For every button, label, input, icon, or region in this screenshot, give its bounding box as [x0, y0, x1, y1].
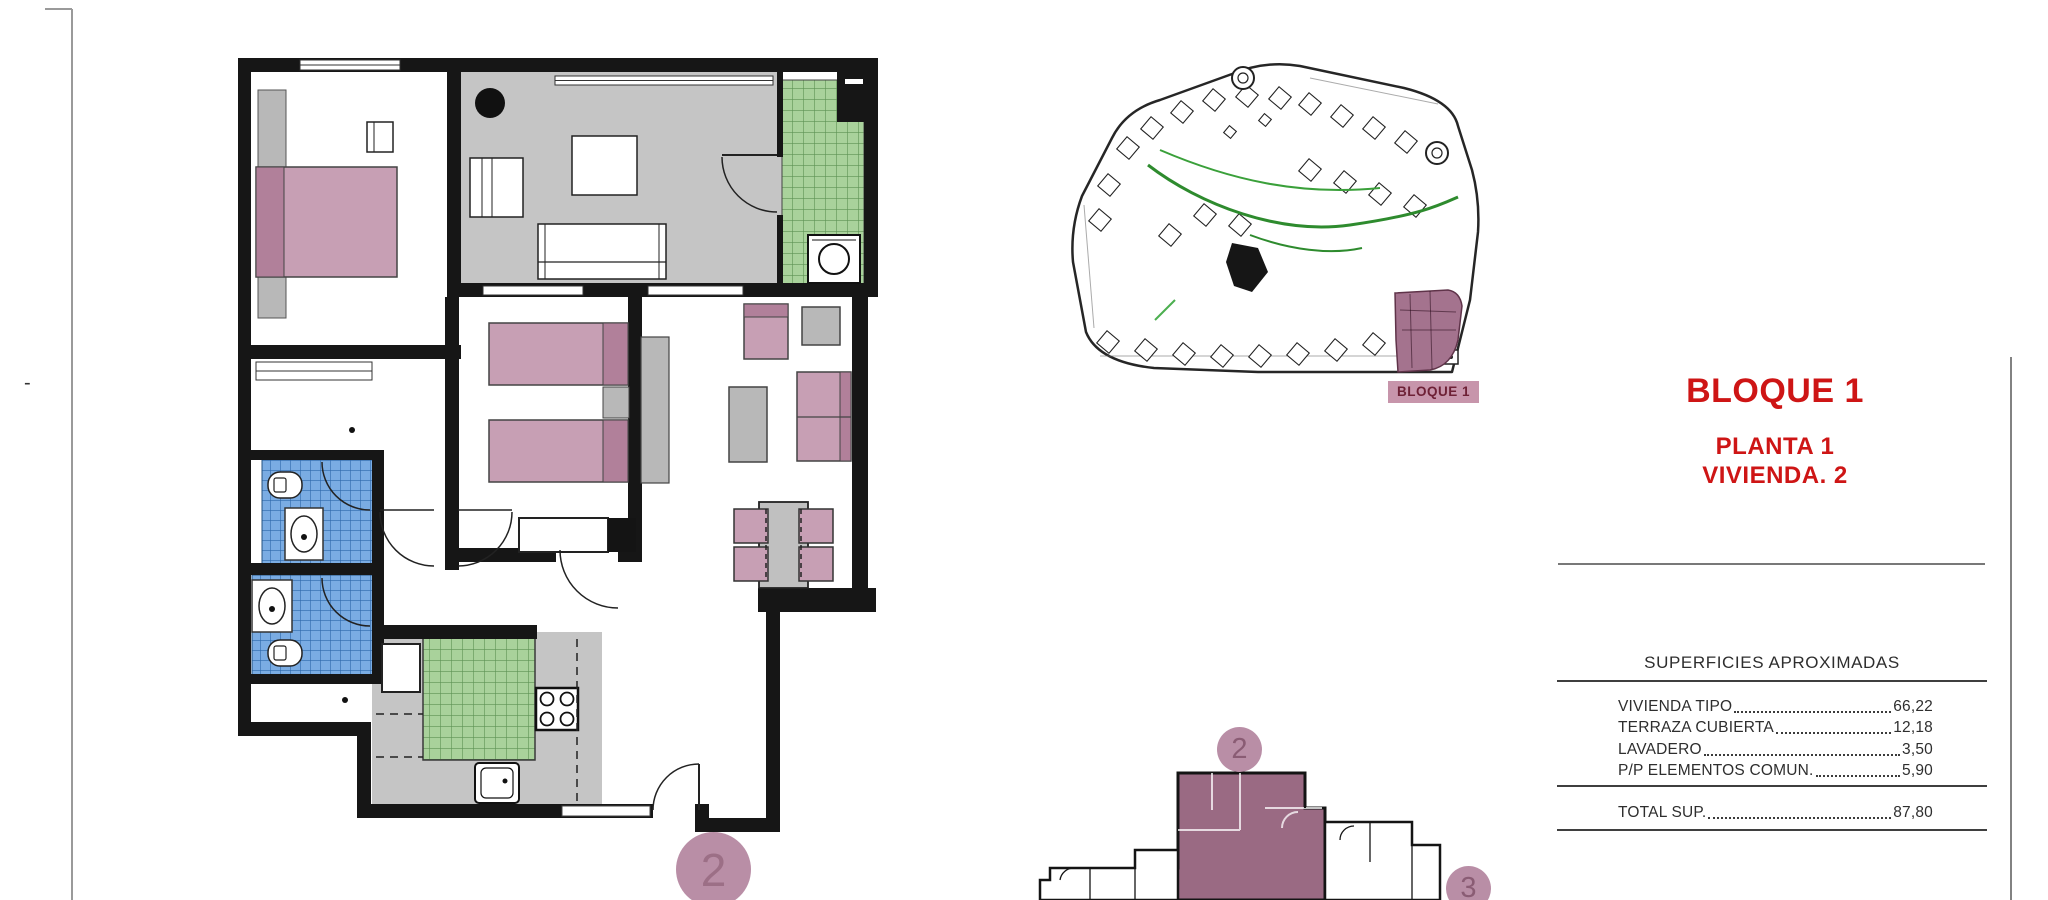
desk — [519, 518, 608, 552]
table-row: VIVIENDA TIPO 66,22 — [1557, 694, 1987, 716]
total-label: TOTAL SUP. — [1618, 804, 1706, 822]
unit-number-marker: 2 — [676, 832, 751, 900]
coffee-table — [729, 387, 767, 462]
side-table — [802, 307, 840, 345]
block-title: BLOQUE 1 — [1560, 372, 1990, 411]
door-dot — [349, 427, 355, 433]
table-row: TERRAZA CUBIERTA 12,18 — [1557, 716, 1987, 738]
bed-headboard — [256, 167, 284, 277]
shelving — [641, 337, 669, 483]
fridge — [382, 644, 420, 692]
site-plan — [1072, 64, 1478, 372]
column — [475, 88, 505, 118]
unit-label: VIVIENDA. 2 — [1560, 462, 1990, 490]
table-row: LAVADERO 3,50 — [1557, 737, 1987, 759]
row-value: 12,18 — [1893, 719, 1933, 737]
site-block-label: BLOQUE 1 — [1388, 381, 1479, 403]
keyplan-unit-2-marker: 2 — [1217, 727, 1262, 772]
keyplan-right-neighbor — [1325, 822, 1440, 900]
roundabout — [1426, 142, 1448, 164]
keyplan-left-neighbor — [1040, 850, 1178, 900]
row-value: 5,90 — [1902, 762, 1933, 780]
key-plan — [1040, 773, 1440, 900]
bedroom2-door-arc — [560, 550, 618, 608]
table-rule — [1557, 785, 1987, 787]
row-value: 66,22 — [1893, 698, 1933, 716]
leader-dots — [1734, 711, 1891, 713]
leader-dots — [1704, 754, 1900, 756]
row-label: TERRAZA CUBIERTA — [1618, 719, 1774, 737]
floor-label: PLANTA 1 — [1560, 433, 1990, 461]
plan-sheet: BLOQUE 1 PLANTA 1 VIVIENDA. 2 SUPERFICIE… — [0, 0, 2048, 900]
table-row: P/P ELEMENTOS COMUN. 5,90 — [1557, 759, 1987, 781]
apartment-floorplan — [238, 58, 878, 832]
page-border-tick — [45, 8, 72, 10]
areas-table-title: SUPERFICIES APROXIMADAS — [1557, 653, 1987, 673]
panel-divider-line — [1558, 563, 1985, 565]
site-center-blob — [1226, 243, 1268, 292]
bedroom-1 — [256, 90, 397, 318]
table-rule — [1557, 829, 1987, 831]
keyplan-unit2 — [1163, 773, 1325, 900]
areas-table: SUPERFICIES APROXIMADAS VIVIENDA TIPO 66… — [1557, 653, 1987, 831]
total-value: 87,80 — [1893, 804, 1933, 822]
site-buildings — [1089, 85, 1427, 368]
table-total-row: TOTAL SUP. 87,80 — [1557, 800, 1987, 822]
door-dot — [342, 697, 348, 703]
leader-dots — [1816, 775, 1901, 777]
armchair — [470, 158, 523, 217]
nightstand — [603, 387, 629, 418]
tv-unit — [367, 122, 393, 152]
chair — [799, 509, 833, 543]
square-table — [572, 136, 637, 195]
leader-dots — [1776, 732, 1891, 734]
page-border-left — [71, 9, 73, 900]
table-rule — [1557, 680, 1987, 682]
chair — [734, 509, 768, 543]
bedroom-2 — [489, 323, 636, 608]
row-label: VIVIENDA TIPO — [1618, 698, 1732, 716]
row-label: LAVADERO — [1618, 741, 1702, 759]
roundabout — [1232, 67, 1254, 89]
row-value: 3,50 — [1902, 741, 1933, 759]
page-border-right — [2010, 357, 2012, 900]
entry-door-arc — [653, 764, 699, 810]
laundry — [808, 235, 860, 283]
living-dining — [641, 304, 851, 588]
kitchen-tiles — [423, 637, 535, 760]
leader-dots — [1708, 817, 1891, 819]
row-label: P/P ELEMENTOS COMUN. — [1618, 762, 1814, 780]
margin-dash: - — [24, 372, 31, 395]
sofa — [538, 224, 666, 279]
chair — [799, 547, 833, 581]
chair — [734, 547, 768, 581]
